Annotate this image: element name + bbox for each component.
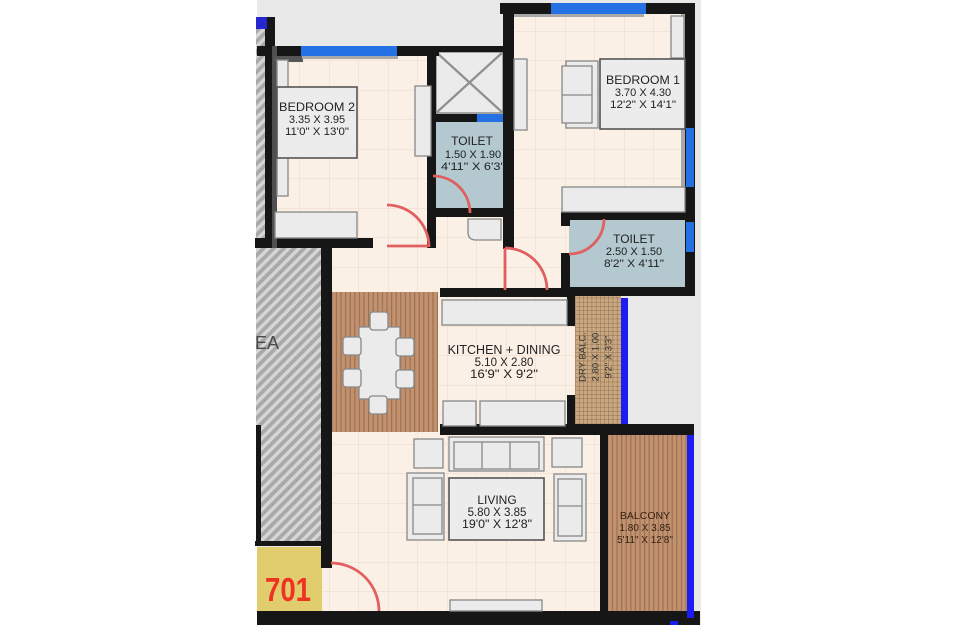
svg-text:3.70 X 4.30: 3.70 X 4.30 bbox=[615, 87, 671, 99]
svg-text:TOILET: TOILET bbox=[451, 134, 493, 148]
svg-text:BALCONY: BALCONY bbox=[620, 510, 670, 522]
svg-text:5.80 X 3.85: 5.80 X 3.85 bbox=[468, 507, 527, 519]
svg-text:BEDROOM 1: BEDROOM 1 bbox=[606, 73, 680, 87]
svg-text:9'2" X 3'3": 9'2" X 3'3" bbox=[604, 335, 615, 378]
svg-text:3.35 X 3.95: 3.35 X 3.95 bbox=[289, 114, 345, 126]
svg-text:DRY BALC.: DRY BALC. bbox=[578, 332, 589, 382]
svg-text:1.50 X 1.90: 1.50 X 1.90 bbox=[445, 149, 501, 161]
svg-text:5'11" X 12'8": 5'11" X 12'8" bbox=[617, 535, 673, 546]
svg-text:KITCHEN + DINING: KITCHEN + DINING bbox=[448, 343, 561, 357]
svg-text:LIVING: LIVING bbox=[477, 493, 516, 507]
svg-text:BEDROOM 2: BEDROOM 2 bbox=[279, 100, 355, 114]
svg-text:TOILET: TOILET bbox=[613, 232, 655, 246]
svg-text:19'0" X 12'8": 19'0" X 12'8" bbox=[462, 519, 532, 531]
svg-text:2.80 X 1.00: 2.80 X 1.00 bbox=[591, 333, 602, 382]
svg-text:12'2" X 14'1": 12'2" X 14'1" bbox=[610, 99, 676, 111]
svg-text:5.10 X 2.80: 5.10 X 2.80 bbox=[475, 357, 534, 369]
svg-text:EA: EA bbox=[255, 333, 279, 353]
svg-text:11'0" X 13'0": 11'0" X 13'0" bbox=[285, 126, 349, 138]
svg-text:4'11" X 6'3": 4'11" X 6'3" bbox=[441, 161, 505, 173]
svg-text:16'9" X 9'2": 16'9" X 9'2" bbox=[470, 369, 538, 381]
svg-text:2.50 X 1.50: 2.50 X 1.50 bbox=[606, 246, 662, 258]
svg-text:1.80 X 3.85: 1.80 X 3.85 bbox=[619, 523, 671, 534]
svg-text:701: 701 bbox=[265, 571, 311, 608]
svg-text:8'2" X 4'11": 8'2" X 4'11" bbox=[604, 258, 664, 270]
